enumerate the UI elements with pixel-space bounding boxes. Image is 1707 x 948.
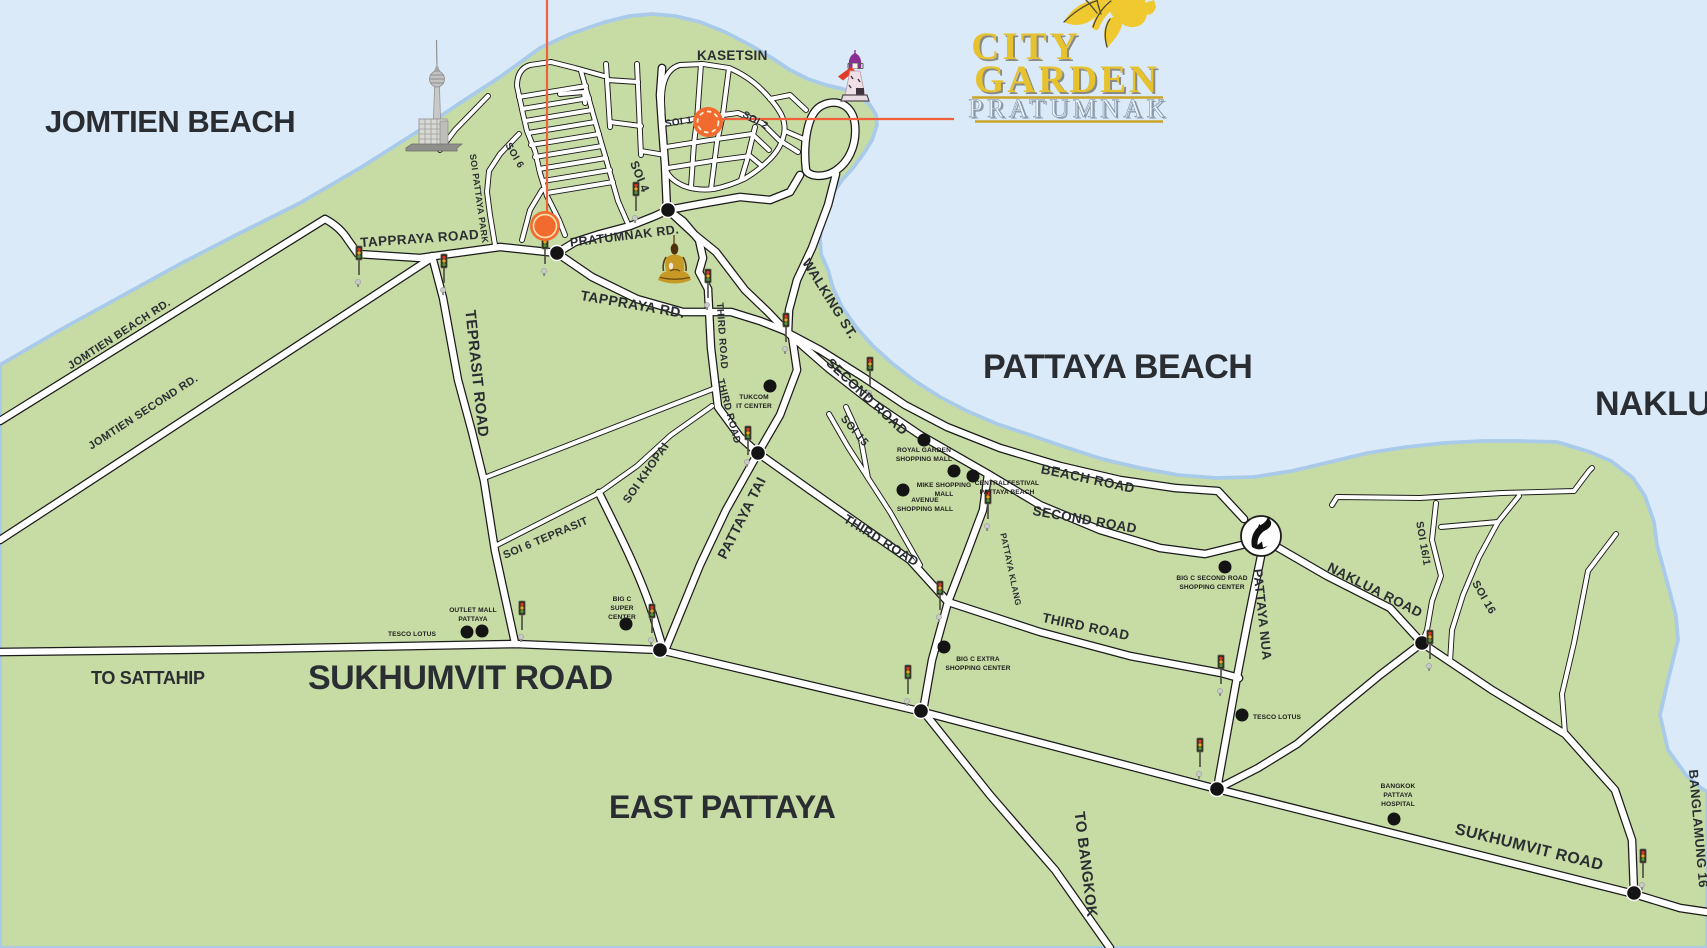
svg-text:BIG C: BIG C: [613, 596, 632, 603]
svg-text:TUKCOM: TUKCOM: [739, 394, 769, 401]
svg-text:SHOPPING CENTER: SHOPPING CENTER: [945, 665, 1010, 672]
svg-text:PATTAYA: PATTAYA: [1383, 792, 1412, 799]
svg-text:SHOPPING MALL: SHOPPING MALL: [897, 506, 953, 513]
svg-text:CENTER: CENTER: [608, 614, 636, 621]
svg-text:PATTAYA BEACH: PATTAYA BEACH: [980, 489, 1035, 496]
svg-text:MIKE SHOPPING: MIKE SHOPPING: [917, 482, 971, 489]
svg-text:AVENUE: AVENUE: [911, 497, 939, 504]
svg-text:SHOPPING MALL: SHOPPING MALL: [896, 456, 952, 463]
svg-text:BANGKOK: BANGKOK: [1381, 783, 1416, 790]
svg-text:SHOPPING CENTER: SHOPPING CENTER: [1179, 584, 1244, 591]
svg-text:KASETSIN: KASETSIN: [697, 48, 768, 63]
svg-text:EAST PATTAYA: EAST PATTAYA: [609, 789, 836, 825]
svg-text:SUKHUMVIT ROAD: SUKHUMVIT ROAD: [308, 659, 613, 697]
svg-text:BIG C SECOND ROAD: BIG C SECOND ROAD: [1176, 575, 1247, 582]
svg-text:BIG C EXTRA: BIG C EXTRA: [956, 656, 1000, 663]
svg-text:JOMTIEN BEACH: JOMTIEN BEACH: [45, 104, 295, 139]
svg-text:TO SATTAHIP: TO SATTAHIP: [91, 668, 205, 688]
svg-text:TESCO LOTUS: TESCO LOTUS: [388, 631, 436, 638]
svg-text:CENTRALFESTIVAL: CENTRALFESTIVAL: [975, 480, 1039, 487]
svg-text:ROYAL GARDEN: ROYAL GARDEN: [897, 447, 951, 454]
svg-text:PATTAYA BEACH: PATTAYA BEACH: [983, 348, 1252, 386]
svg-text:SUPER: SUPER: [610, 605, 633, 612]
svg-text:PATTAYA: PATTAYA: [458, 616, 487, 623]
svg-text:HOSPITAL: HOSPITAL: [1381, 801, 1415, 808]
svg-text:OUTLET MALL: OUTLET MALL: [449, 607, 497, 614]
svg-text:TESCO LOTUS: TESCO LOTUS: [1253, 714, 1301, 721]
svg-text:IT CENTER: IT CENTER: [736, 403, 772, 410]
svg-text:NAKLUA: NAKLUA: [1595, 385, 1707, 423]
